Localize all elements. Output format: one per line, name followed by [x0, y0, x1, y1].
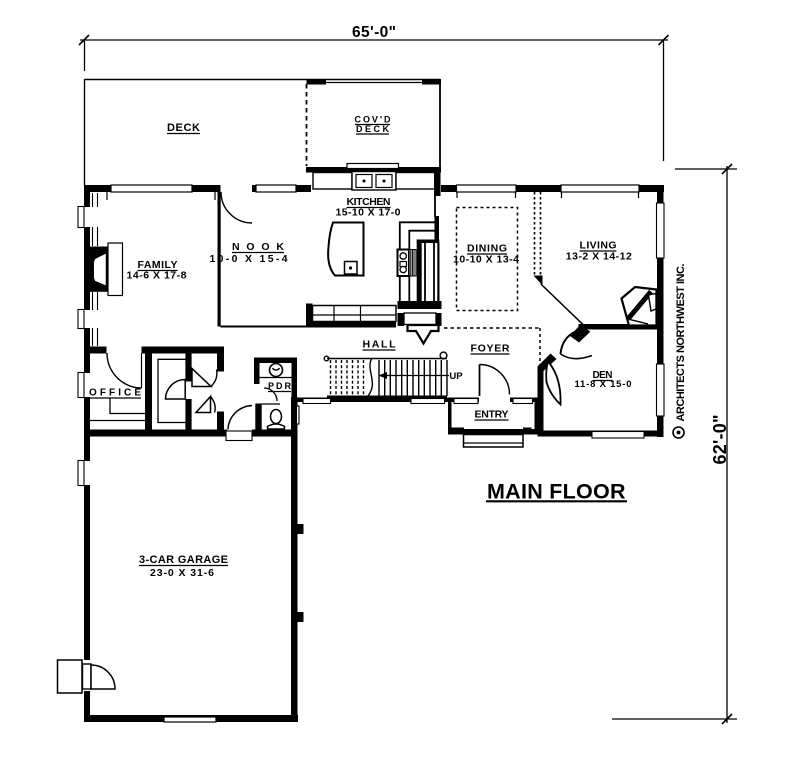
svg-text:65'-0": 65'-0": [352, 24, 396, 41]
svg-text:ARCHITECTS NORTHWEST INC.: ARCHITECTS NORTHWEST INC.: [675, 264, 687, 422]
svg-text:DECK: DECK: [356, 124, 390, 134]
svg-text:HALL: HALL: [363, 339, 397, 351]
svg-text:10-0 X 15-4: 10-0 X 15-4: [210, 253, 288, 265]
svg-text:DECK: DECK: [167, 122, 200, 134]
svg-text:FOYER: FOYER: [471, 343, 510, 355]
svg-text:PDR: PDR: [268, 381, 292, 391]
svg-text:23-0 X 31-6: 23-0 X 31-6: [150, 567, 214, 579]
svg-text:13-2 X 14-12: 13-2 X 14-12: [566, 251, 632, 263]
svg-text:10-10 X 13-4: 10-10 X 13-4: [453, 254, 519, 266]
svg-text:UP: UP: [449, 371, 463, 382]
svg-text:14-6 X 17-8: 14-6 X 17-8: [127, 270, 187, 282]
svg-text:62'-0": 62'-0": [710, 415, 730, 465]
svg-text:15-10 X 17-0: 15-10 X 17-0: [336, 207, 401, 219]
svg-text:3-CAR GARAGE: 3-CAR GARAGE: [139, 554, 228, 566]
svg-text:MAIN FLOOR: MAIN FLOOR: [487, 480, 627, 504]
svg-text:ENTRY: ENTRY: [475, 409, 509, 421]
svg-text:COV'D: COV'D: [355, 115, 392, 125]
